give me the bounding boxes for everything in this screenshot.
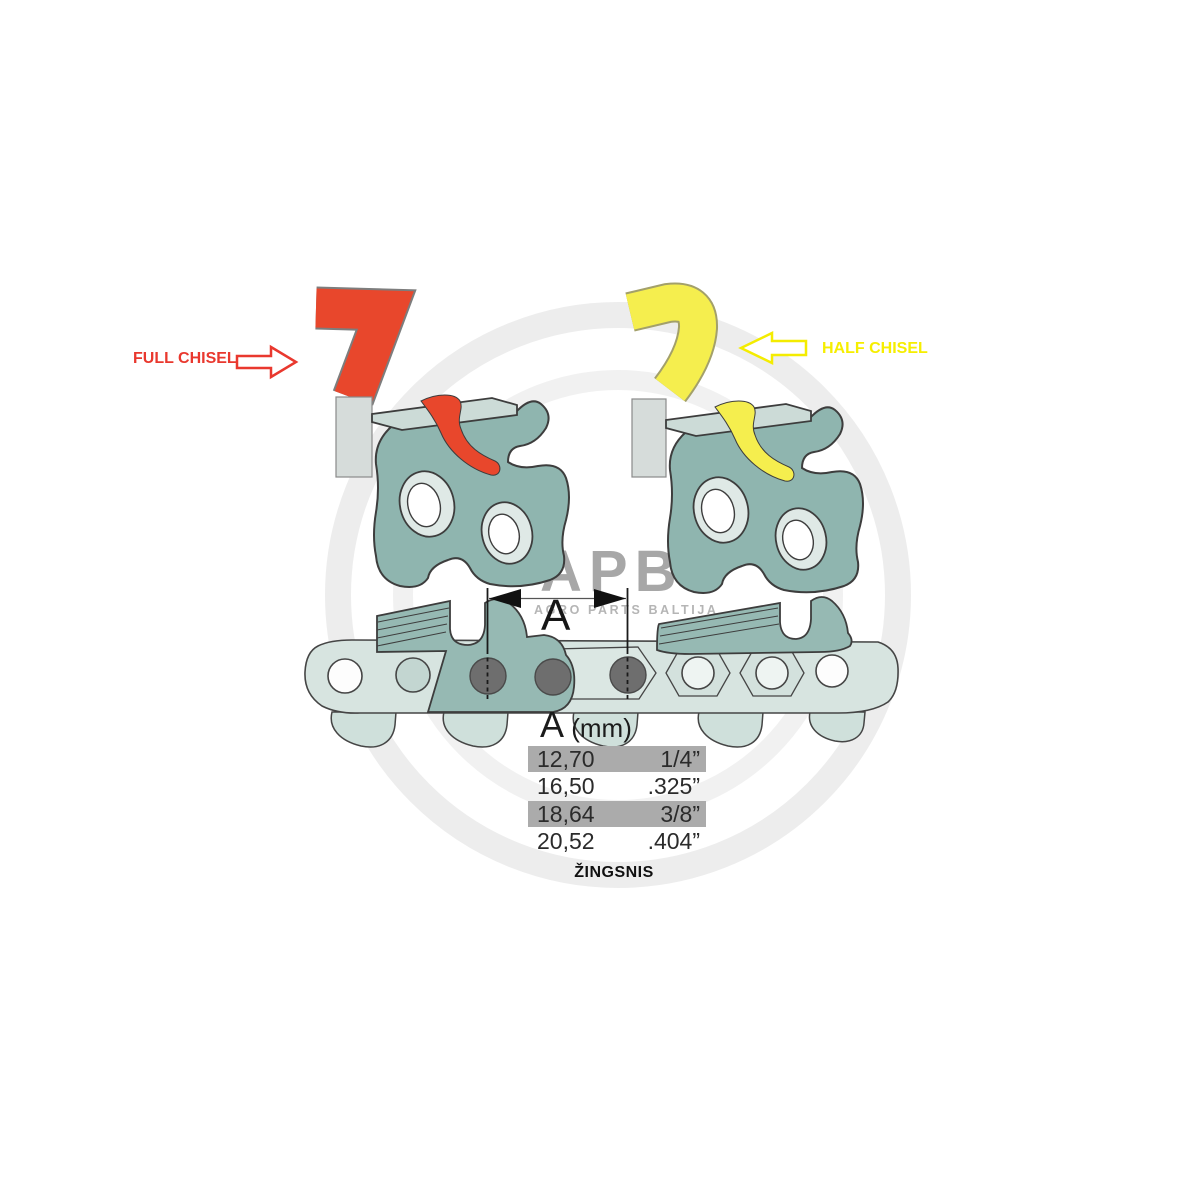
pitch-mm-value: 12,70 — [537, 746, 595, 773]
dimension-arrowhead-left-icon — [489, 589, 521, 608]
half-chisel-profile-outline — [630, 303, 698, 390]
chain-tie-strap-hex-2 — [740, 650, 804, 696]
chain-strap-band — [305, 640, 898, 713]
full-chisel-arrow-icon — [237, 347, 296, 377]
table-row: 20,52 .404” — [528, 829, 706, 855]
chain-hole-5 — [816, 655, 848, 687]
half-chisel-side-plate-bar — [632, 399, 666, 477]
chain-tie-strap-middle — [537, 647, 656, 699]
full-chisel-cutting-edge — [421, 395, 500, 475]
pitch-inch-value: .404” — [648, 828, 700, 855]
pitch-mm-value: 20,52 — [537, 828, 595, 855]
chain-tie-strap-hex-1 — [666, 650, 730, 696]
full-chisel-profile-outline — [316, 308, 386, 398]
pitch-table-header: A (mm) — [540, 704, 632, 746]
chain-rivet-3 — [610, 657, 646, 693]
full-chisel-label: FULL CHISEL — [133, 350, 237, 368]
chain-cutter-left-ridges — [377, 608, 449, 646]
cutter-link-3d-right — [666, 404, 863, 593]
product-illustration-page: APB AGRO PARTS BALTIJA — [0, 0, 1188, 1188]
full-chisel-profile-shape — [316, 308, 386, 398]
chain-rivet-2 — [535, 659, 571, 695]
half-chisel-profile — [630, 303, 698, 477]
chain-hole-1 — [328, 659, 362, 693]
pitch-inch-value: .325” — [648, 773, 700, 800]
chain-hole-2 — [396, 658, 430, 692]
table-row: 12,70 1/4” — [528, 746, 706, 772]
pitch-mm-value: 16,50 — [537, 773, 595, 800]
chain-hole-4 — [756, 657, 788, 689]
pitch-table-header-unit: (mm) — [564, 713, 632, 743]
pitch-table: 12,70 1/4” 16,50 .325” 18,64 3/8” 20,52 … — [528, 746, 706, 856]
pitch-inch-value: 1/4” — [660, 746, 700, 773]
pitch-mm-value: 18,64 — [537, 801, 595, 828]
full-chisel-profile — [316, 308, 386, 477]
full-chisel-side-plate-bar — [336, 397, 372, 477]
half-chisel-label: HALF CHISEL — [822, 340, 928, 358]
half-chisel-arrow-icon — [741, 333, 806, 363]
dimension-letter: A — [541, 594, 570, 638]
table-row: 16,50 .325” — [528, 774, 706, 800]
pitch-inch-value: 3/8” — [660, 801, 700, 828]
pitch-caption: ŽINGSNIS — [521, 864, 707, 882]
chain-rivet-1 — [470, 658, 506, 694]
pitch-table-header-letter: A — [540, 704, 564, 745]
chain-hole-3 — [682, 657, 714, 689]
half-chisel-profile-shape — [630, 303, 698, 390]
table-row: 18,64 3/8” — [528, 801, 706, 827]
half-chisel-cutting-edge — [715, 401, 794, 481]
